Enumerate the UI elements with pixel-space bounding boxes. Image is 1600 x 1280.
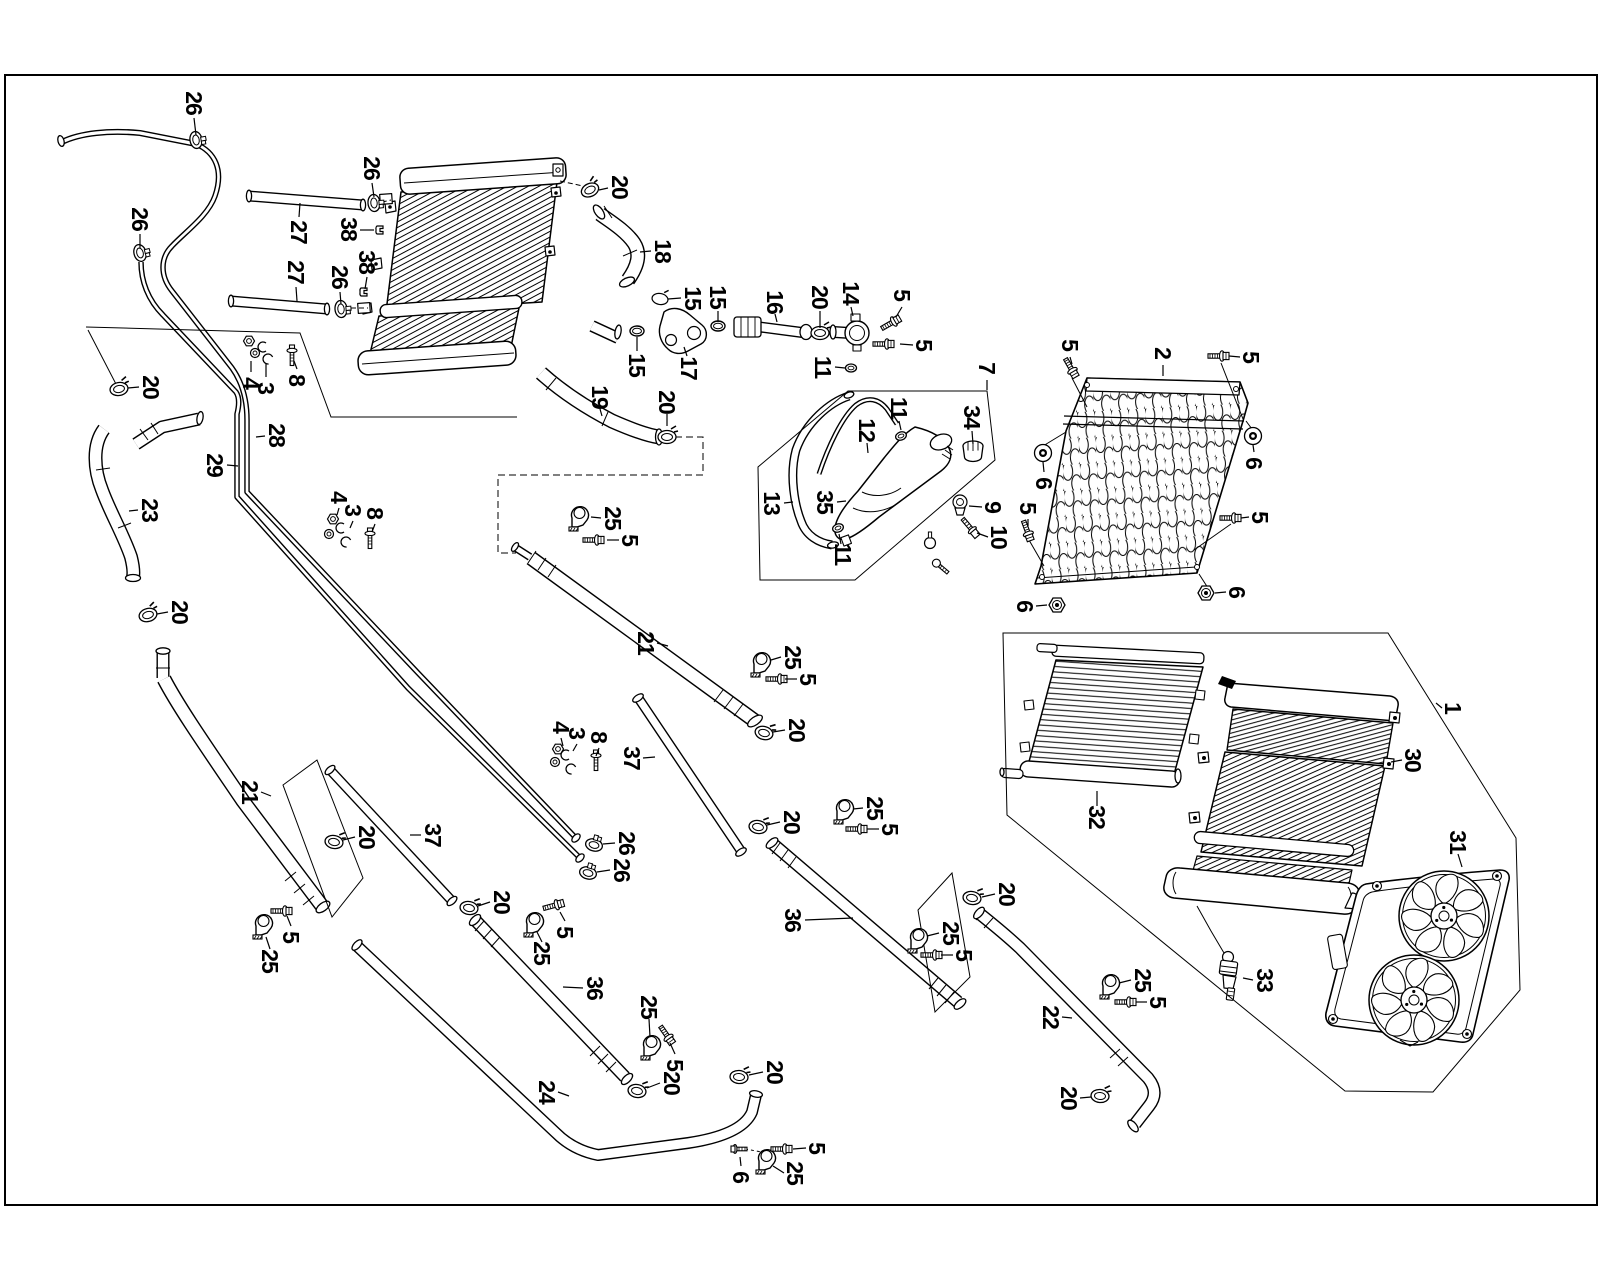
callout-6: 6	[1241, 457, 1267, 469]
small-o-ring-icon	[846, 364, 857, 372]
callout-15: 15	[705, 285, 731, 310]
callout-5: 5	[795, 673, 821, 686]
grommet-icon	[1245, 428, 1262, 445]
callout-20: 20	[607, 175, 633, 199]
callout-5: 5	[278, 931, 304, 944]
callout-25: 25	[600, 506, 626, 531]
callout-26: 26	[181, 91, 207, 115]
grommet-icon	[1035, 445, 1052, 462]
callout-20: 20	[354, 825, 380, 849]
callout-6: 6	[728, 1171, 754, 1183]
callout-37: 37	[619, 746, 645, 770]
callout-28: 28	[264, 423, 290, 448]
nut-icon	[328, 514, 339, 524]
callout-5: 5	[1247, 511, 1273, 524]
callout-5: 5	[1145, 996, 1171, 1009]
callout-20: 20	[807, 285, 833, 309]
callout-36: 36	[780, 908, 806, 932]
callout-2: 2	[1150, 347, 1176, 359]
callout-13: 13	[759, 491, 785, 515]
callout-24: 24	[534, 1080, 560, 1105]
callout-26: 26	[327, 265, 353, 289]
callout-11: 11	[810, 356, 836, 380]
diagram-border	[5, 75, 1597, 1205]
callout-27: 27	[283, 260, 309, 284]
callout-38: 38	[336, 217, 362, 242]
callout-29: 29	[202, 453, 228, 477]
callout-20: 20	[654, 390, 680, 414]
callout-8: 8	[586, 731, 612, 744]
parts-diagram-canvas: 2626262727383826201815151517162014551119…	[0, 0, 1600, 1280]
callout-38: 38	[354, 250, 380, 275]
o-ring-icon	[711, 321, 725, 331]
callout-19: 19	[587, 385, 613, 409]
callout-23: 23	[137, 498, 163, 522]
callout-5: 5	[951, 949, 977, 962]
callout-5: 5	[804, 1142, 830, 1155]
callout-9: 9	[980, 501, 1006, 513]
callout-36: 36	[582, 976, 608, 1000]
callout-37: 37	[420, 823, 446, 847]
callout-32: 32	[1084, 805, 1110, 829]
callout-21: 21	[633, 631, 659, 656]
callout-5: 5	[1015, 502, 1041, 515]
flange-nut-icon	[1198, 586, 1214, 600]
callout-22: 22	[1038, 1005, 1064, 1029]
callout-27: 27	[286, 220, 312, 244]
callout-5: 5	[552, 926, 578, 939]
flange-nut-icon	[1049, 598, 1065, 612]
callout-20: 20	[167, 600, 193, 624]
callout-5: 5	[877, 823, 903, 836]
callout-21: 21	[237, 780, 263, 805]
callout-20: 20	[994, 882, 1020, 906]
bushing-clip-icon	[336, 523, 344, 533]
callout-25: 25	[938, 921, 964, 946]
cooling-fan	[1399, 871, 1489, 961]
washer-icon	[551, 758, 560, 767]
callout-20: 20	[138, 375, 164, 399]
callout-25: 25	[782, 1161, 808, 1186]
callout-10: 10	[986, 525, 1012, 549]
callout-6: 6	[1224, 586, 1250, 598]
callout-20: 20	[784, 718, 810, 742]
callout-25: 25	[862, 796, 888, 821]
callout-14: 14	[838, 281, 864, 306]
callout-33: 33	[1252, 968, 1278, 992]
callout-15: 15	[624, 353, 650, 378]
callout-5: 5	[911, 339, 937, 352]
callout-20: 20	[659, 1071, 685, 1095]
callout-1: 1	[1440, 702, 1466, 715]
callout-8: 8	[284, 374, 310, 387]
callout-25: 25	[529, 941, 555, 966]
nut-icon	[244, 336, 255, 346]
bushing-clip-icon	[258, 342, 266, 352]
callout-4: 4	[326, 491, 352, 504]
callout-20: 20	[779, 810, 805, 834]
callout-12: 12	[854, 418, 880, 442]
callout-3: 3	[253, 382, 279, 394]
callout-18: 18	[650, 239, 676, 264]
callout-25: 25	[257, 949, 283, 974]
washer-icon	[325, 530, 334, 539]
callout-11: 11	[830, 543, 856, 567]
callout-8: 8	[362, 507, 388, 520]
callout-34: 34	[959, 405, 985, 430]
callout-25: 25	[1130, 968, 1156, 993]
callout-16: 16	[762, 290, 788, 314]
callout-20: 20	[762, 1060, 788, 1084]
o-ring-icon	[630, 326, 644, 336]
callout-5: 5	[889, 289, 915, 302]
callout-5: 5	[1238, 351, 1264, 364]
cooling-fan	[1369, 955, 1459, 1045]
callout-31: 31	[1445, 830, 1471, 855]
callout-26: 26	[127, 207, 153, 231]
callout-5: 5	[662, 1059, 688, 1072]
callout-6: 6	[1031, 477, 1057, 489]
callout-11: 11	[886, 397, 912, 421]
callout-25: 25	[780, 645, 806, 670]
callout-26: 26	[609, 858, 635, 882]
callout-20: 20	[489, 890, 515, 914]
callout-26: 26	[614, 831, 640, 855]
callout-26: 26	[359, 156, 385, 180]
reservoir-cap-icon	[963, 441, 983, 462]
callout-6: 6	[1012, 600, 1038, 612]
callout-7: 7	[974, 362, 1000, 374]
callout-5: 5	[617, 534, 643, 547]
callout-15: 15	[680, 286, 706, 311]
bushing-clip-icon	[561, 750, 569, 760]
callout-25: 25	[636, 995, 662, 1020]
callout-20: 20	[1056, 1086, 1082, 1110]
callout-35: 35	[812, 490, 838, 515]
callout-5: 5	[1057, 339, 1083, 352]
callout-17: 17	[676, 356, 702, 380]
callout-30: 30	[1400, 748, 1426, 772]
